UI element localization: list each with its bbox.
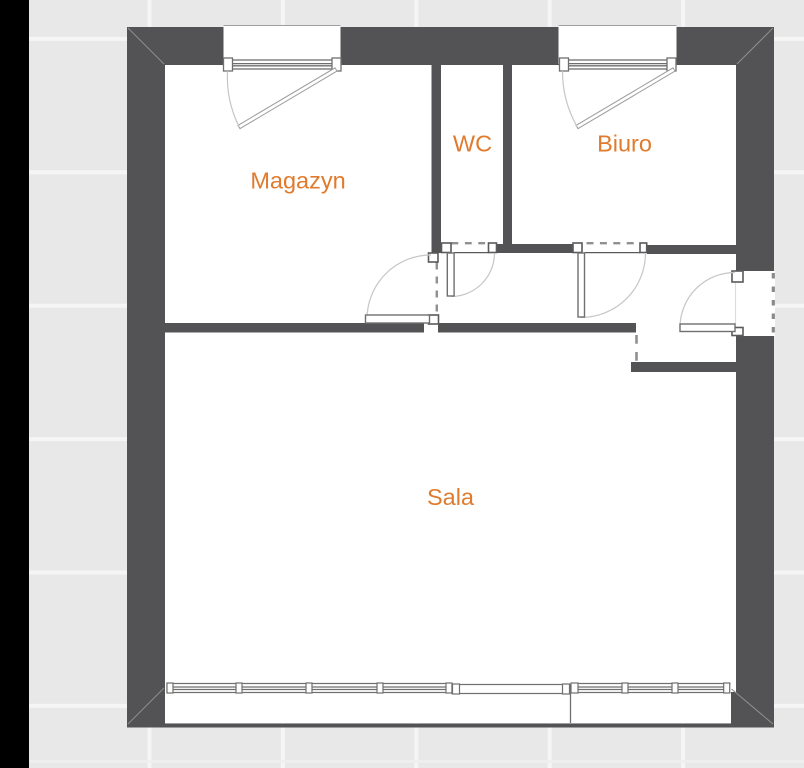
svg-text:Biuro: Biuro <box>597 131 652 157</box>
svg-text:Magazyn: Magazyn <box>250 168 345 194</box>
svg-text:WC: WC <box>453 131 492 157</box>
svg-text:Sala: Sala <box>427 484 475 510</box>
